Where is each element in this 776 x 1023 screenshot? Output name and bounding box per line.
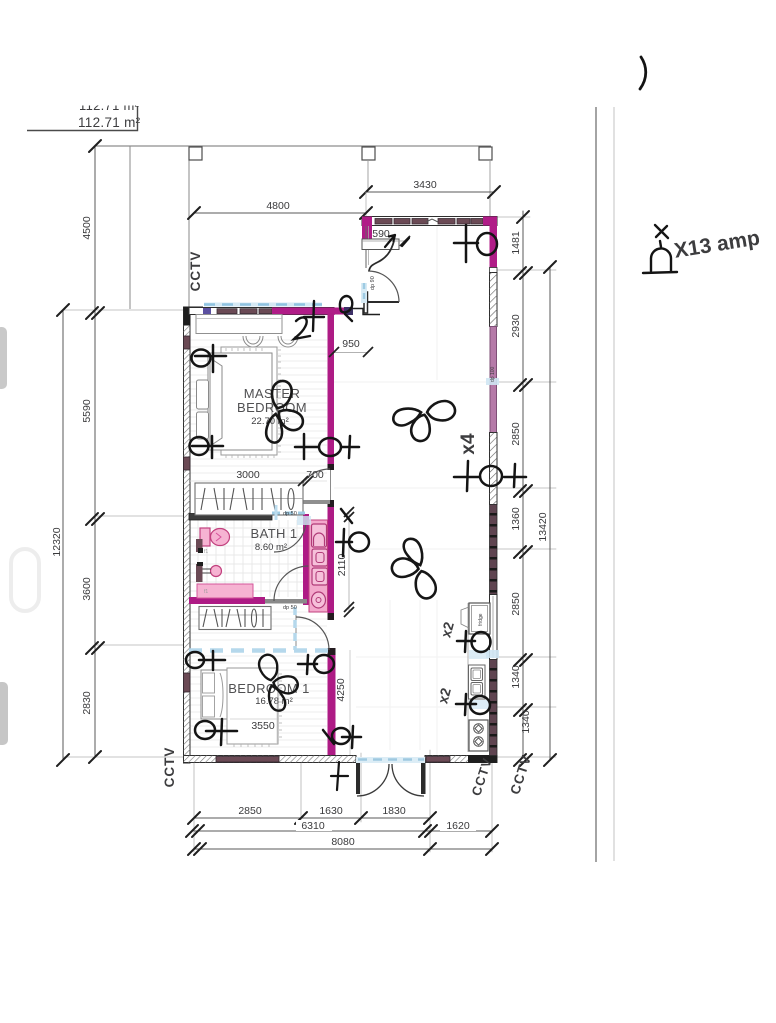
svg-text:dp 90: dp 90 bbox=[370, 276, 376, 290]
svg-text:3600: 3600 bbox=[81, 577, 93, 601]
svg-text:13420: 13420 bbox=[537, 512, 549, 541]
svg-text:3550: 3550 bbox=[251, 720, 275, 732]
svg-text:dp 50: dp 50 bbox=[283, 605, 297, 611]
svg-text:1481: 1481 bbox=[510, 231, 522, 255]
svg-text:3430: 3430 bbox=[413, 179, 437, 191]
svg-text:1630: 1630 bbox=[319, 805, 343, 817]
svg-text:950: 950 bbox=[342, 338, 360, 350]
svg-text:f1: f1 bbox=[204, 589, 208, 595]
svg-text:1340: 1340 bbox=[520, 710, 532, 734]
svg-text:5590: 5590 bbox=[81, 399, 93, 423]
svg-text:3000: 3000 bbox=[236, 469, 260, 481]
svg-text:2850: 2850 bbox=[510, 592, 522, 616]
svg-text:2830: 2830 bbox=[81, 691, 93, 715]
svg-text:12320: 12320 bbox=[51, 527, 63, 556]
svg-text:2850: 2850 bbox=[238, 805, 262, 817]
svg-text:dp 100: dp 100 bbox=[490, 366, 496, 382]
svg-text:8.60 m²: 8.60 m² bbox=[255, 542, 287, 553]
svg-text:4800: 4800 bbox=[266, 200, 290, 212]
svg-text:8080: 8080 bbox=[331, 836, 355, 848]
svg-text:dp 50: dp 50 bbox=[283, 511, 297, 517]
svg-text:x4: x4 bbox=[458, 433, 479, 455]
svg-text:fridge: fridge bbox=[478, 613, 484, 626]
svg-text:4250: 4250 bbox=[335, 678, 347, 702]
svg-text:1620: 1620 bbox=[446, 820, 470, 832]
svg-text:1830: 1830 bbox=[382, 805, 406, 817]
svg-text:4500: 4500 bbox=[81, 216, 93, 240]
svg-text:BATH 1: BATH 1 bbox=[251, 526, 298, 541]
svg-text:112.71 m²: 112.71 m² bbox=[78, 115, 141, 130]
svg-text:CCTV: CCTV bbox=[188, 251, 203, 292]
svg-text:CCTV: CCTV bbox=[162, 747, 177, 788]
svg-text:f1: f1 bbox=[204, 549, 208, 555]
svg-text:2850: 2850 bbox=[510, 422, 522, 446]
svg-text:1360: 1360 bbox=[510, 507, 522, 531]
svg-text:590: 590 bbox=[372, 228, 390, 240]
svg-text:16.78 m²: 16.78 m² bbox=[255, 696, 293, 707]
svg-text:2930: 2930 bbox=[510, 314, 522, 338]
svg-text:2110: 2110 bbox=[336, 554, 348, 577]
svg-text:1340: 1340 bbox=[510, 665, 522, 689]
svg-text:6310: 6310 bbox=[301, 820, 325, 832]
